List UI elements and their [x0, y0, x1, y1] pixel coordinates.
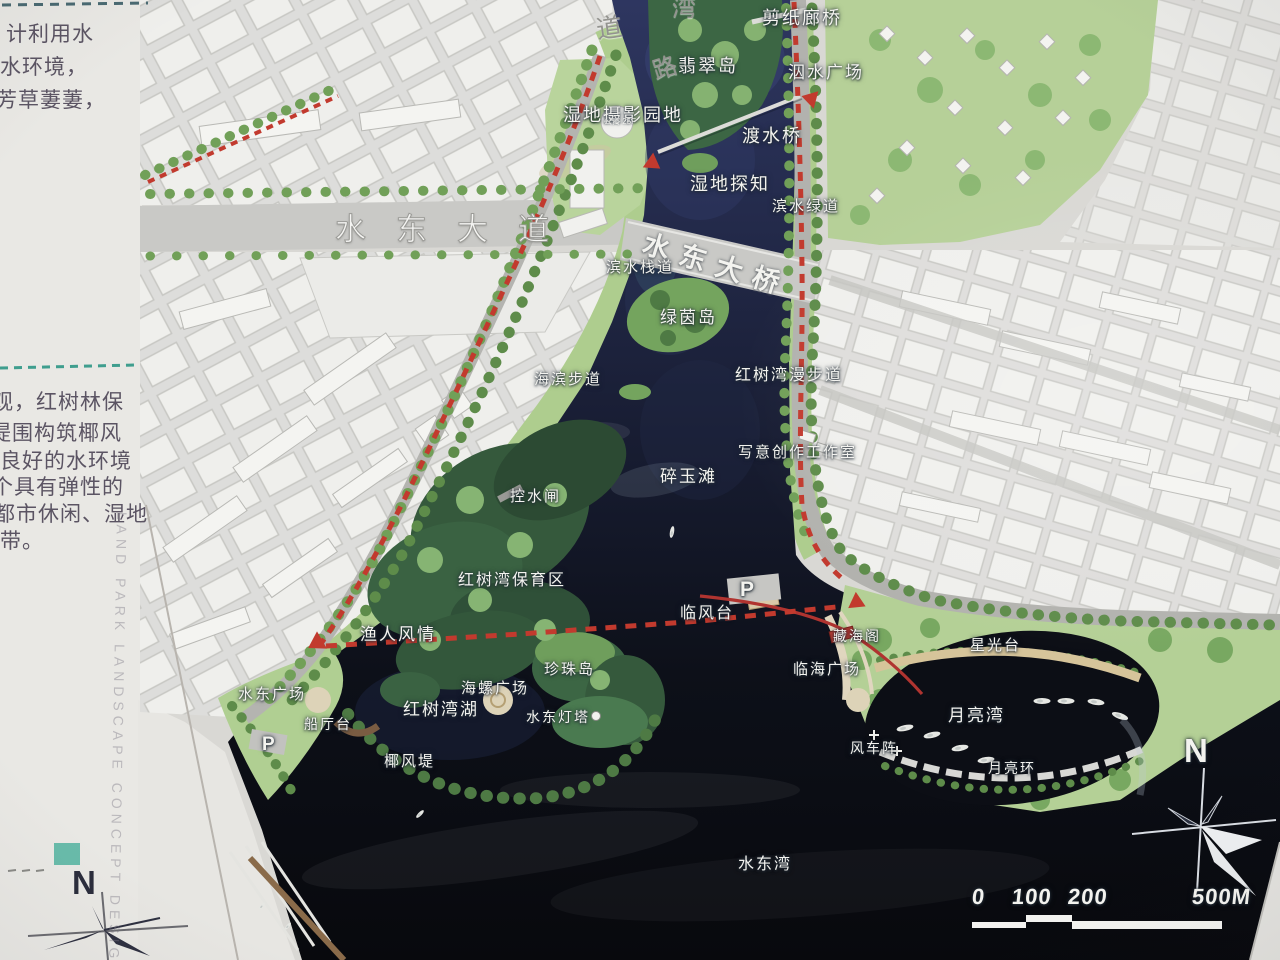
- label-apartment-note: 公寓 25F: [604, 116, 636, 127]
- label-waterfront-boardwalk: 滨水栈道: [606, 256, 674, 277]
- label-mangrove-promenade: 红树湾漫步道: [735, 361, 843, 385]
- label-boat-hall-deck: 船厅台: [304, 714, 352, 734]
- margin-line: 观，红树林保: [0, 386, 124, 416]
- label-wind-deck: 临风台: [680, 599, 734, 623]
- label-starlight-deck: 星光台: [970, 634, 1021, 655]
- label-fisherman-folk: 渔人风情: [360, 620, 436, 645]
- label-coconut-dike: 椰风堤: [384, 750, 435, 771]
- label-windmill-array: 风车阵: [850, 738, 898, 758]
- scale-500m: 500M: [1191, 884, 1253, 910]
- scale-200: 200: [1067, 884, 1109, 910]
- label-jade-island: 翡翠岛: [678, 52, 738, 78]
- label-lighthouse: 水东灯塔: [526, 707, 590, 727]
- parking-icon-west: P: [262, 734, 275, 756]
- lighthouse-dot: [592, 712, 601, 721]
- margin-line: 芳草萋萋，: [0, 84, 106, 114]
- label-seaside-plaza: 临海广场: [793, 658, 861, 679]
- label-waterfront-greenway: 滨水绿道: [772, 195, 840, 216]
- label-paper-bridge: 剪纸廊桥: [762, 4, 842, 30]
- parking-icon-east: P: [740, 578, 754, 602]
- label-crossing-bridge: 渡水桥: [742, 122, 802, 148]
- map-art: [0, 0, 1280, 960]
- shuidong-plaza-circle: [305, 687, 331, 713]
- label-art-studio: 写意创作工作室: [738, 441, 857, 462]
- label-green-island: 绿茵岛: [660, 303, 717, 328]
- label-mangrove-reserve: 红树湾保育区: [458, 566, 566, 590]
- label-qiushui-plaza: 泅水广场: [788, 58, 864, 83]
- label-jade-shoal: 碎玉滩: [660, 462, 717, 487]
- margin-line: 个具有弹性的: [0, 471, 124, 501]
- label-water-gate: 控水闸: [510, 485, 561, 506]
- margin-line: 水环境，: [0, 51, 88, 81]
- label-sea-pavilion: 藏海阁: [833, 626, 881, 646]
- masterplan-photo: 剪纸廊桥 翡翠岛 泅水广场 湿地摄影园地 公寓 25F 渡水桥 湿地探知 滨水绿…: [0, 0, 1280, 960]
- label-road-char-wan: 湾: [672, 0, 696, 23]
- north-label-left: N: [72, 864, 96, 902]
- label-moon-ring: 月亮环: [988, 758, 1036, 778]
- label-road-char-dao: 道: [594, 6, 625, 46]
- scale-0: 0: [971, 884, 987, 910]
- label-moon-bay: 月亮湾: [948, 701, 1005, 726]
- north-label-right: N: [1184, 732, 1208, 770]
- label-shuidong-avenue: 水东大道: [335, 204, 579, 249]
- label-shuidong-plaza: 水东广场: [238, 683, 306, 704]
- margin-line: 带。: [0, 525, 44, 555]
- label-pearl-island: 珍珠岛: [544, 658, 595, 679]
- margin-line: 计利用水: [6, 18, 94, 48]
- margin-line: 堤围构筑椰风: [0, 417, 122, 447]
- scale-100: 100: [1011, 884, 1053, 910]
- label-shuidong-bay: 水东湾: [738, 850, 792, 874]
- label-seaside-walk: 海滨步道: [534, 368, 602, 389]
- label-mangrove-lake: 红树湾湖: [403, 695, 479, 720]
- label-wetland-explore: 湿地探知: [690, 170, 770, 196]
